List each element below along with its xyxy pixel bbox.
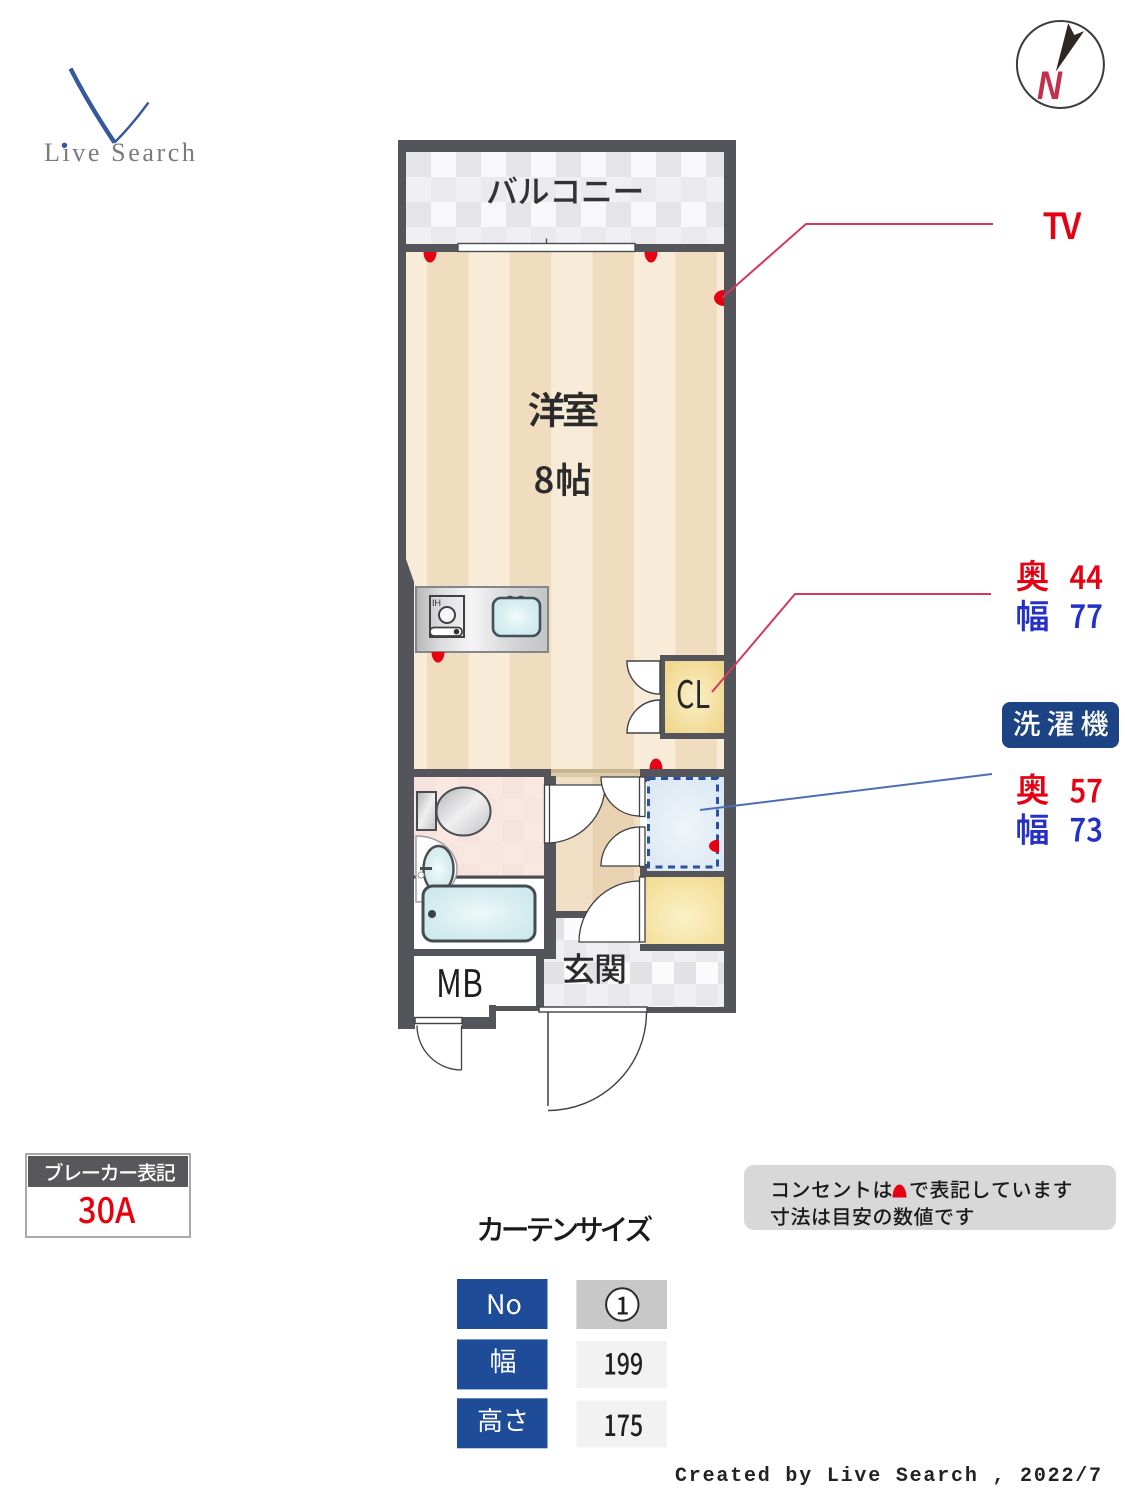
- svg-text:N: N: [1037, 64, 1063, 108]
- svg-text:Created by Live Search , 2022/: Created by Live Search , 2022/7: [675, 1465, 1103, 1488]
- svg-text:Live Search: Live Search: [44, 138, 197, 167]
- svg-text:IH: IH: [432, 598, 441, 608]
